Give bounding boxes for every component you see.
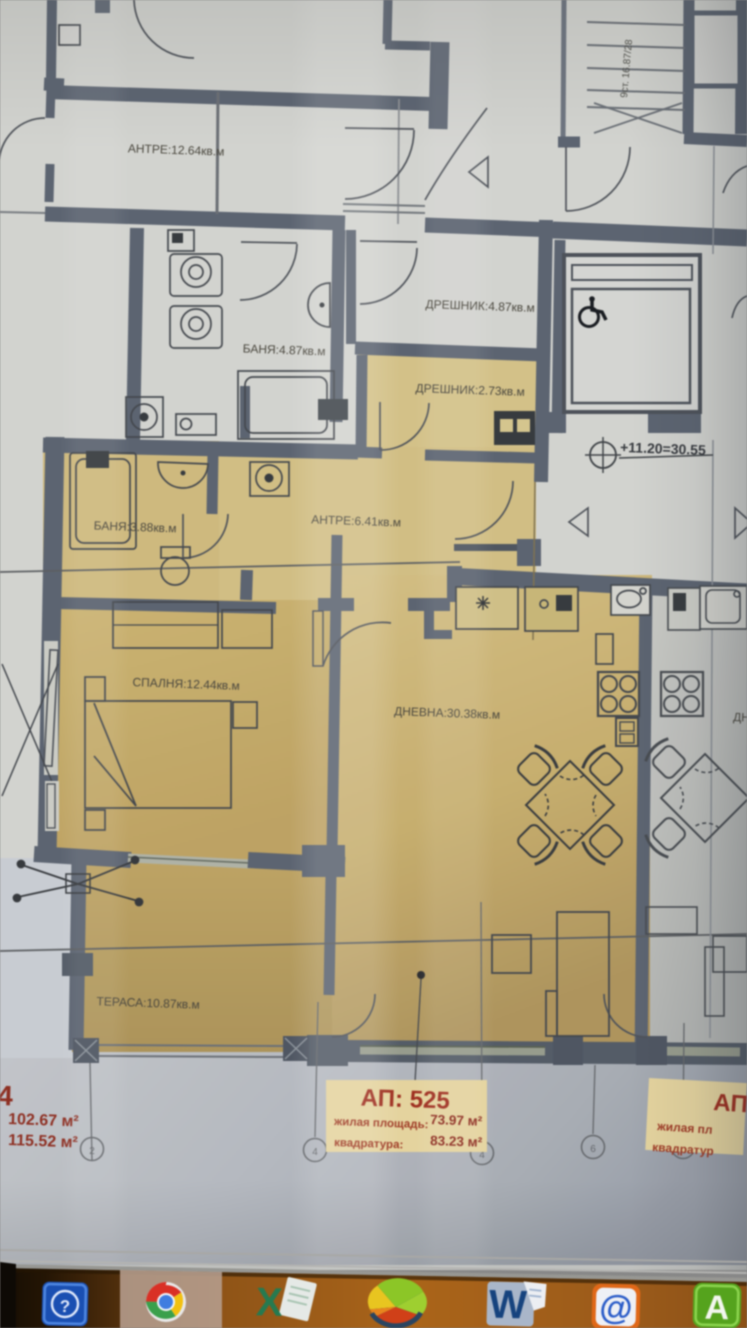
svg-text:X: X [255, 1280, 283, 1325]
svg-text:A: A [704, 1289, 730, 1328]
svg-text:@: @ [599, 1289, 633, 1328]
svg-text:W: W [488, 1282, 527, 1327]
svg-text:?: ? [59, 1297, 70, 1316]
